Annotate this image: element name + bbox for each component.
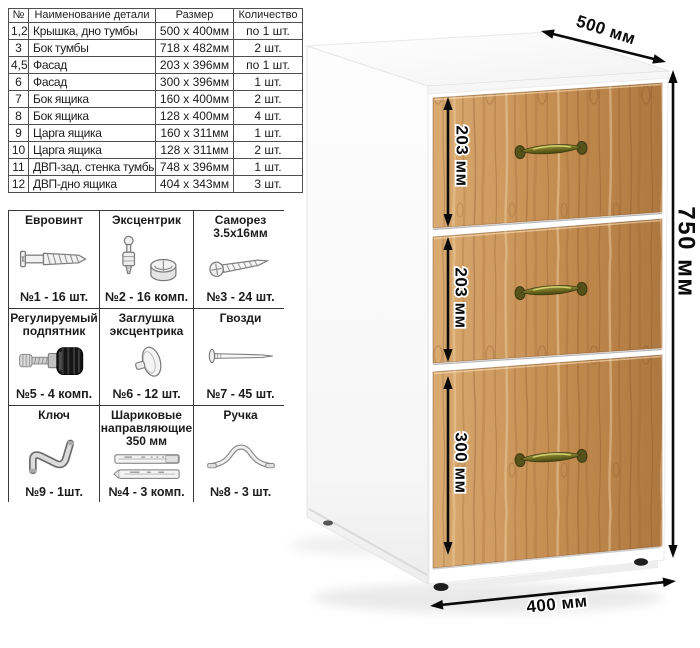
ball-slides-icon: [106, 449, 188, 485]
cell-size: 128 x 400мм: [156, 108, 234, 125]
cell-name: Бок ящика: [29, 108, 156, 125]
cell-name: Фасад: [29, 57, 156, 74]
table-row: 12ДВП-дно ящика404 x 343мм3 шт.: [9, 176, 303, 193]
table-row: 9Царга ящика160 x 311мм1 шт.: [9, 125, 303, 142]
cell-name: Бок ящика: [29, 91, 156, 108]
hardware-item-title: Ключ: [38, 409, 70, 422]
table-row: 1,2Крышка, дно тумбы500 x 400ммпо 1 шт.: [9, 23, 303, 40]
hardware-item-count: №4 - 3 комп.: [108, 485, 184, 499]
cell-num: 7: [9, 91, 29, 108]
adjustable-foot-icon: [13, 338, 95, 387]
drawer-2-height-label: 203 мм: [452, 267, 471, 328]
col-header-name: Наименование детали: [29, 9, 156, 23]
height-arrow: [668, 70, 677, 558]
cell-qty: 2 шт.: [234, 91, 303, 108]
hardware-item-count: №9 - 1шт.: [25, 485, 83, 499]
cell-num: 4,5: [9, 57, 29, 74]
cell-num: 11: [9, 159, 29, 176]
hardware-item-count: №6 - 12 шт.: [112, 387, 180, 401]
table-row: 8Бок ящика128 x 400мм4 шт.: [9, 108, 303, 125]
drawer-3-height-label: 300 мм: [452, 432, 471, 493]
cell-size: 748 x 396мм: [156, 159, 234, 176]
euro-screw-icon: [13, 227, 95, 290]
hardware-cell-klyuch: Ключ №9 - 1шт.: [9, 406, 99, 503]
cell-qty: 1 шт.: [234, 125, 303, 142]
hardware-item-title: Евровинт: [25, 214, 83, 227]
table-row: 3Бок тумбы718 x 482мм2 шт.: [9, 40, 303, 57]
table-row: 4,5Фасад203 x 396ммпо 1 шт.: [9, 57, 303, 74]
cell-num: 10: [9, 142, 29, 159]
cell-name: Царга ящика: [29, 125, 156, 142]
cell-qty: 1 шт.: [234, 159, 303, 176]
table-row: 11ДВП-зад. стенка тумбы748 x 396мм1 шт.: [9, 159, 303, 176]
col-header-qty: Количество: [234, 9, 303, 23]
cam-lock-icon: [106, 227, 188, 290]
hardware-grid: Евровинт №1 - 16 шт. Эксцентрик: [8, 210, 284, 502]
hardware-item-title: Регулируемый подпятник: [10, 312, 98, 338]
hardware-item-title: Гвозди: [220, 312, 262, 325]
cell-qty: 2 шт.: [234, 142, 303, 159]
cell-size: 718 x 482мм: [156, 40, 234, 57]
cell-size: 203 x 396мм: [156, 57, 234, 74]
hardware-item-count: №1 - 16 шт.: [20, 290, 88, 304]
parts-table: № Наименование детали Размер Количество …: [8, 8, 303, 193]
cell-name: Бок тумбы: [29, 40, 156, 57]
cabinet-side-panel: [307, 46, 428, 584]
tapping-screw-icon: [200, 240, 282, 290]
col-header-num: №: [9, 9, 29, 23]
cell-num: 8: [9, 108, 29, 125]
nail-icon: [200, 325, 282, 387]
cell-num: 6: [9, 74, 29, 91]
cell-size: 500 x 400мм: [156, 23, 234, 40]
hardware-cell-samorez: Саморез 3.5х16мм №3 - 24 шт.: [194, 211, 287, 308]
table-row: 10Царга ящика128 x 311мм2 шт.: [9, 142, 303, 159]
cell-name: ДВП-дно ящика: [29, 176, 156, 193]
drawer-1-height-label: 203 мм: [453, 125, 472, 186]
cell-name: ДВП-зад. стенка тумбы: [29, 159, 156, 176]
hardware-item-title: Заглушка эксцентрика: [110, 312, 184, 338]
hardware-item-title: Эксцентрик: [112, 214, 181, 227]
hardware-item-count: №3 - 24 шт.: [206, 290, 274, 304]
parts-table-header-row: № Наименование детали Размер Количество: [9, 9, 303, 23]
hardware-item-title: Ручка: [223, 409, 257, 422]
cell-qty: по 1 шт.: [234, 57, 303, 74]
assembly-sheet: { "parts_table": { "headers": ["№", "Наи…: [0, 0, 700, 648]
hardware-item-count: №5 - 4 комп.: [16, 387, 92, 401]
cell-num: 12: [9, 176, 29, 193]
cell-num: 3: [9, 40, 29, 57]
cell-qty: 1 шт.: [234, 74, 303, 91]
cell-size: 300 x 396мм: [156, 74, 234, 91]
cell-name: Крышка, дно тумбы: [29, 23, 156, 40]
col-header-size: Размер: [156, 9, 234, 23]
cell-num: 1,2: [9, 23, 29, 40]
cell-qty: 3 шт.: [234, 176, 303, 193]
cell-num: 9: [9, 125, 29, 142]
hardware-cell-eurovint: Евровинт №1 - 16 шт.: [9, 211, 99, 308]
hardware-item-count: №2 - 16 комп.: [105, 290, 188, 304]
height-label: 750 мм: [673, 206, 700, 297]
table-row: 7Бок ящика160 x 400мм2 шт.: [9, 91, 303, 108]
hardware-cell-napravlyayushchie: Шариковые направляющие 350 мм №4 - 3 ком…: [100, 406, 193, 503]
cell-qty: 2 шт.: [234, 40, 303, 57]
hardware-cell-podpyatnik: Регулируемый подпятник №5 - 4 комп.: [9, 309, 99, 405]
hardware-item-title: Шариковые направляющие 350 мм: [101, 409, 192, 449]
cam-cap-icon: [106, 338, 188, 387]
hardware-cell-excentrik: Эксцентрик №2 - 16 комп.: [100, 211, 193, 308]
cell-size: 404 x 343мм: [156, 176, 234, 193]
cabinet-foot-side: [323, 520, 333, 525]
hardware-item-count: №8 - 3 шт.: [210, 485, 271, 499]
hardware-cell-gvozdi: Гвозди №7 - 45 шт.: [194, 309, 287, 405]
cell-name: Фасад: [29, 74, 156, 91]
hardware-item-count: №7 - 45 шт.: [206, 387, 274, 401]
cell-size: 160 x 400мм: [156, 91, 234, 108]
cell-qty: по 1 шт.: [234, 23, 303, 40]
handle-icon: [200, 422, 282, 485]
cell-qty: 4 шт.: [234, 108, 303, 125]
hardware-cell-zaglushka: Заглушка эксцентрика №6 - 12 шт.: [100, 309, 193, 405]
cell-name: Царга ящика: [29, 142, 156, 159]
table-row: 6Фасад300 x 396мм1 шт.: [9, 74, 303, 91]
cabinet-foot-right: [634, 558, 648, 566]
hardware-item-title: Саморез 3.5х16мм: [213, 214, 267, 240]
cabinet-foot-left: [434, 583, 449, 591]
hardware-cell-ruchka: Ручка №8 - 3 шт.: [194, 406, 287, 503]
hex-key-icon: [13, 422, 95, 485]
cell-size: 160 x 311мм: [156, 125, 234, 142]
cell-size: 128 x 311мм: [156, 142, 234, 159]
